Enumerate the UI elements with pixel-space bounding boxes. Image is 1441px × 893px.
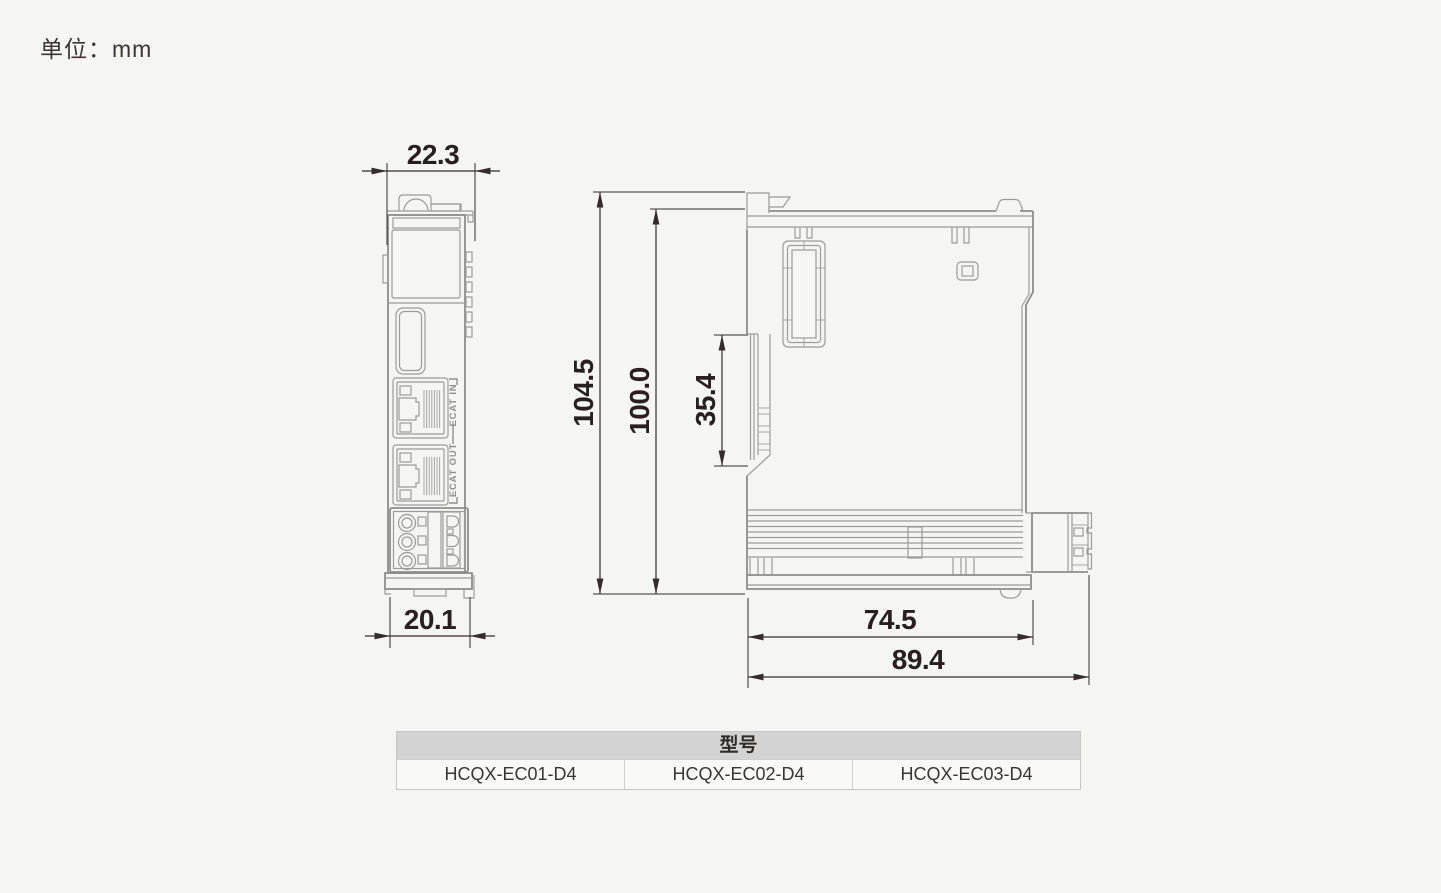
front-label-area (392, 230, 460, 298)
side-latch (957, 262, 978, 280)
rj45-ecat-out (393, 445, 448, 505)
front-top-clip (399, 195, 461, 211)
dim-35-4: 35.4 (690, 373, 721, 426)
dim-89-4: 89.4 (892, 644, 945, 675)
dim-100-0: 100.0 (624, 367, 655, 435)
dim-20-1: 20.1 (404, 604, 457, 635)
model-table-header: 型号 (397, 732, 1080, 759)
side-vent-ribs (747, 510, 1023, 575)
front-status-window (396, 308, 425, 374)
side-slot-frame (783, 241, 825, 347)
dimension-side-total-depth: 89.4 (748, 575, 1089, 685)
dimension-side-din-slot: 35.4 (690, 335, 748, 466)
front-terminal-block (390, 508, 468, 572)
side-top-rail (747, 200, 1033, 228)
rj45-ecat-in (393, 378, 448, 438)
dim-22-3: 22.3 (407, 139, 460, 170)
model-cell-3: HCQX-EC03-D4 (853, 760, 1080, 789)
side-rear-connector (1026, 513, 1092, 572)
dimension-side-body-depth: 74.5 (748, 598, 1033, 688)
front-view: ECAT IN ECAT OUT (383, 195, 474, 598)
ecat-in-label: ECAT IN (448, 384, 459, 427)
side-bottom-plate (747, 575, 1031, 598)
model-table: 型号 HCQX-EC01-D4 HCQX-EC02-D4 HCQX-EC03-D… (396, 731, 1081, 790)
model-cell-2: HCQX-EC02-D4 (625, 760, 853, 789)
dimension-side-body-height: 100.0 (624, 209, 745, 594)
model-cell-1: HCQX-EC01-D4 (397, 760, 625, 789)
dim-74-5: 74.5 (864, 604, 917, 635)
side-din-channel (747, 230, 770, 575)
dimension-front-width-top: 22.3 (362, 139, 500, 245)
side-view (747, 193, 1092, 598)
ecat-out-label: ECAT OUT (448, 443, 459, 497)
front-vent-tabs (466, 252, 472, 337)
dim-104-5: 104.5 (568, 359, 599, 427)
model-table-row: HCQX-EC01-D4 HCQX-EC02-D4 HCQX-EC03-D4 (397, 759, 1080, 789)
port-labels: ECAT IN ECAT OUT (448, 379, 459, 503)
dimension-front-width-bottom: 20.1 (365, 597, 495, 648)
front-bottom-flange (385, 573, 474, 598)
